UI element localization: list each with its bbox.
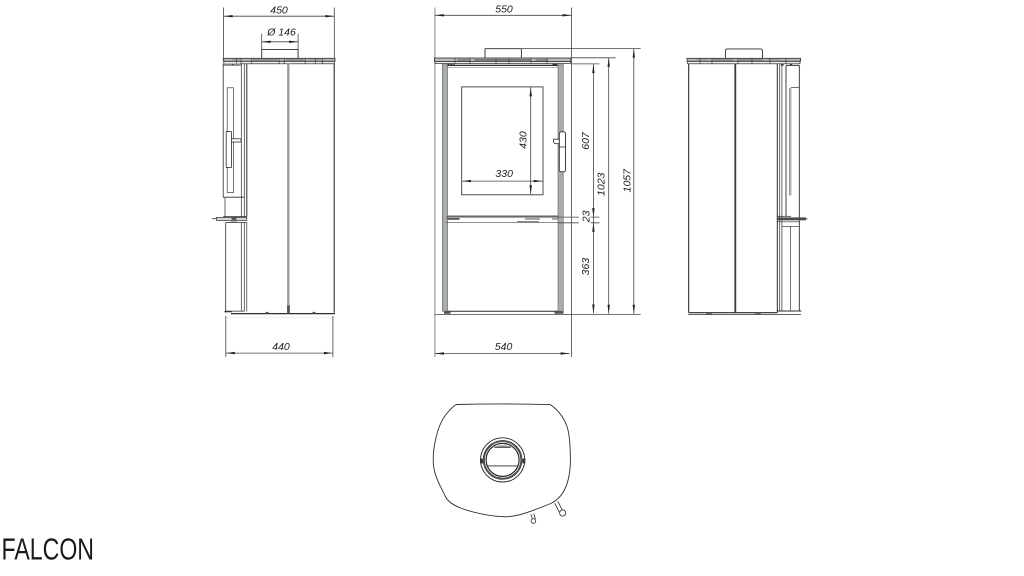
svg-text:430: 430 (517, 131, 529, 149)
svg-text:FALCON: FALCON (2, 532, 95, 567)
svg-text:Ø 146: Ø 146 (266, 27, 296, 39)
svg-text:607: 607 (580, 131, 592, 150)
svg-text:450: 450 (270, 4, 288, 16)
svg-text:540: 540 (495, 341, 513, 353)
svg-text:550: 550 (495, 4, 513, 16)
svg-text:1023: 1023 (596, 172, 608, 196)
svg-text:363: 363 (580, 258, 592, 276)
svg-text:330: 330 (495, 168, 513, 180)
svg-text:1057: 1057 (621, 168, 633, 193)
svg-text:440: 440 (272, 341, 290, 353)
svg-text:23: 23 (581, 210, 593, 223)
